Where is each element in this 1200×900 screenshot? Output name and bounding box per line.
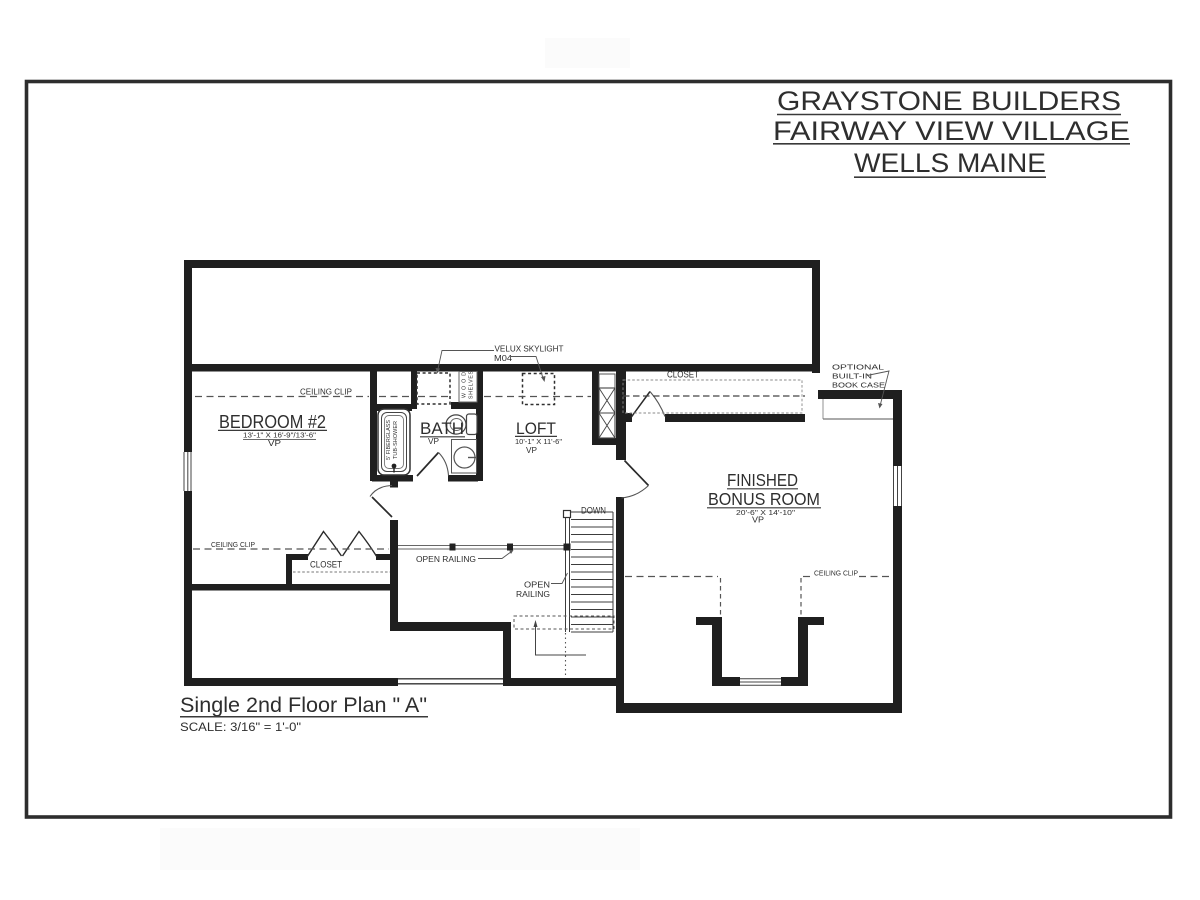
svg-text:GRAYSTONE BUILDERS: GRAYSTONE BUILDERS: [777, 86, 1121, 116]
svg-text:BUILT-IN: BUILT-IN: [832, 372, 872, 381]
svg-text:5' FIBERGLASS: 5' FIBERGLASS: [386, 420, 392, 460]
svg-text:20'-6" X 14'-10": 20'-6" X 14'-10": [736, 508, 795, 517]
svg-text:CEILING CLIP: CEILING CLIP: [814, 569, 858, 578]
svg-text:SCALE: 3/16" = 1'-0": SCALE: 3/16" = 1'-0": [180, 722, 301, 734]
svg-text:RAILING: RAILING: [516, 589, 550, 599]
svg-text:VELUX SKYLIGHT: VELUX SKYLIGHT: [495, 344, 564, 354]
svg-text:VP: VP: [428, 437, 439, 446]
svg-text:VP: VP: [268, 439, 281, 448]
svg-text:WELLS MAINE: WELLS MAINE: [854, 148, 1046, 178]
svg-text:CEILING CLIP: CEILING CLIP: [211, 540, 255, 549]
svg-text:10'-1" X 11'-6": 10'-1" X 11'-6": [515, 437, 562, 446]
svg-text:VP: VP: [526, 446, 537, 455]
svg-text:OPEN: OPEN: [524, 580, 550, 590]
svg-text:CEILING CLIP: CEILING CLIP: [300, 388, 352, 397]
svg-text:DOWN: DOWN: [581, 506, 606, 516]
svg-text:LOFT: LOFT: [516, 419, 556, 438]
svg-text:FAIRWAY VIEW VILLAGE: FAIRWAY VIEW VILLAGE: [773, 116, 1130, 146]
svg-text:SHELVES: SHELVES: [469, 370, 475, 399]
svg-text:FINISHED: FINISHED: [727, 470, 798, 490]
svg-text:BOOK CASE: BOOK CASE: [832, 381, 885, 390]
svg-text:CLOSET: CLOSET: [667, 370, 699, 380]
svg-text:CLOSET: CLOSET: [310, 560, 342, 570]
svg-text:M04: M04: [494, 353, 512, 363]
svg-text:OPTIONAL: OPTIONAL: [832, 363, 884, 372]
svg-text:BEDROOM #2: BEDROOM #2: [219, 411, 326, 432]
svg-text:OPEN RAILING: OPEN RAILING: [416, 554, 476, 564]
svg-text:BATH: BATH: [420, 419, 464, 438]
svg-text:Single 2nd Floor Plan " A": Single 2nd Floor Plan " A": [180, 694, 427, 717]
svg-text:VP: VP: [752, 516, 764, 525]
svg-text:TUB-SHOWER: TUB-SHOWER: [393, 421, 399, 459]
svg-text:BONUS ROOM: BONUS ROOM: [708, 489, 820, 509]
